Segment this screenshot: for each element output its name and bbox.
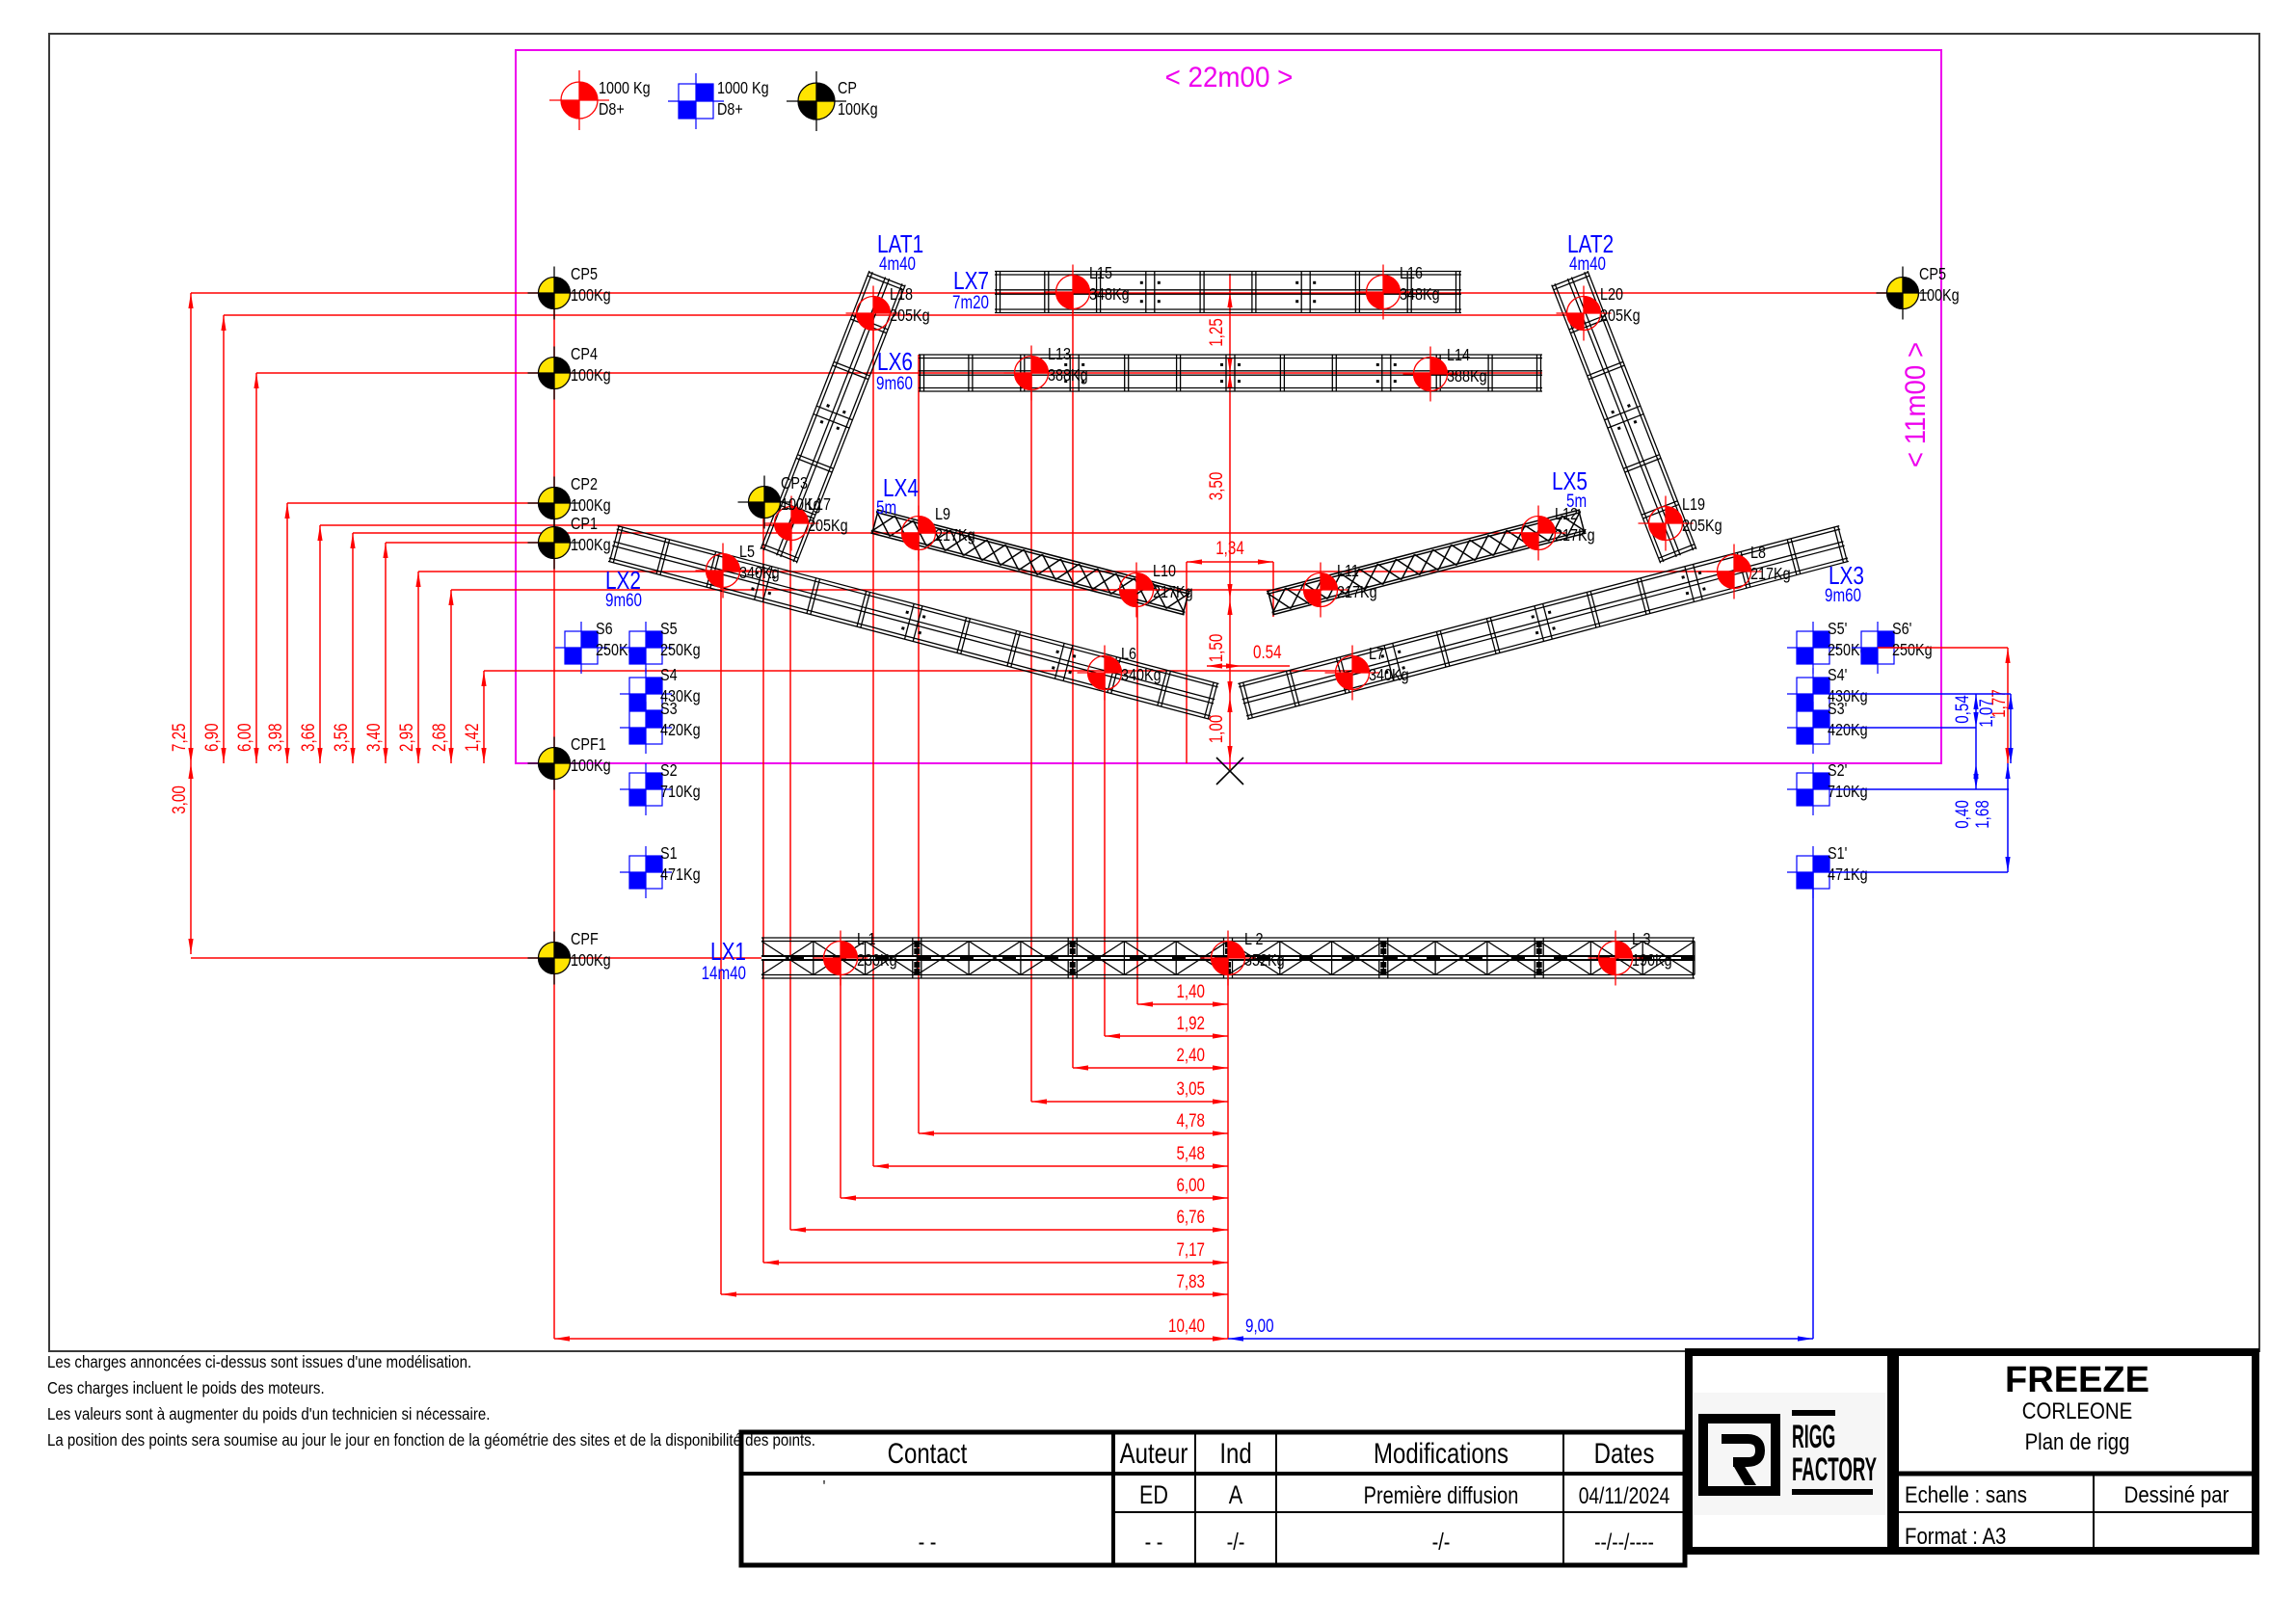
svg-text:3,98: 3,98 [264,723,285,752]
svg-text:100Kg: 100Kg [781,495,821,515]
svg-text:1,42: 1,42 [461,723,482,752]
svg-text:1,07: 1,07 [1975,699,1996,728]
svg-text:217Kg: 217Kg [1337,583,1377,602]
svg-text:340Kg: 340Kg [1121,666,1161,685]
svg-text:5,48: 5,48 [1176,1142,1205,1163]
svg-text:L 3: L 3 [1632,930,1650,949]
svg-text:S4': S4' [1828,666,1847,685]
svg-text:S6: S6 [596,620,613,639]
svg-text:4m40: 4m40 [879,253,916,274]
svg-text:S5: S5 [660,620,678,639]
svg-text:348Kg: 348Kg [1400,285,1440,305]
svg-text:471Kg: 471Kg [1828,865,1868,885]
svg-text:L6: L6 [1121,645,1136,664]
svg-text:-/-: -/- [1432,1529,1451,1556]
svg-text:--/--/----: --/--/---- [1594,1529,1654,1556]
svg-text:7,17: 7,17 [1176,1238,1205,1260]
svg-text:Plan de rigg: Plan de rigg [2025,1428,2130,1454]
svg-text:-/-: -/- [1227,1529,1245,1556]
svg-text:3,00: 3,00 [168,785,189,814]
svg-text:205Kg: 205Kg [1682,517,1722,536]
svg-text:3,56: 3,56 [330,723,351,752]
svg-text:L15: L15 [1089,264,1112,283]
svg-text:Dates: Dates [1594,1436,1655,1469]
svg-text:340Kg: 340Kg [1369,666,1409,685]
svg-text:1,92: 1,92 [1176,1012,1205,1033]
svg-text:CP: CP [838,79,857,98]
svg-text:9,00: 9,00 [1245,1315,1274,1336]
svg-text:471Kg: 471Kg [660,865,701,885]
svg-text:4,78: 4,78 [1176,1109,1205,1131]
svg-text:100Kg: 100Kg [1919,286,1960,306]
svg-text:CP5: CP5 [1919,265,1946,284]
svg-text:420Kg: 420Kg [660,721,701,740]
svg-text:388Kg: 388Kg [1447,367,1487,386]
svg-text:S6': S6' [1892,620,1911,639]
svg-text:La position des points sera so: La position des points sera soumise au j… [47,1431,815,1450]
svg-text:Modifications: Modifications [1374,1436,1508,1469]
svg-text:S2': S2' [1828,761,1847,781]
svg-text:3,50: 3,50 [1205,472,1226,501]
svg-text:420Kg: 420Kg [1828,721,1868,740]
svg-text:1,34: 1,34 [1215,537,1244,558]
svg-text:S2: S2 [660,761,678,781]
svg-text:Contact: Contact [888,1436,968,1469]
svg-text:205Kg: 205Kg [890,306,930,326]
svg-text:L 1: L 1 [857,930,875,949]
svg-text:6,90: 6,90 [200,723,222,752]
svg-text:7,83: 7,83 [1176,1270,1205,1291]
svg-text:CP1: CP1 [571,515,598,534]
svg-text:L9: L9 [935,505,950,524]
svg-text:CP2: CP2 [571,475,598,494]
svg-text:2,40: 2,40 [1176,1044,1205,1065]
svg-text:0,54: 0,54 [1951,695,1972,724]
svg-text:L5: L5 [739,543,755,562]
svg-text:6,76: 6,76 [1176,1206,1205,1227]
svg-text:RIGG: RIGG [1792,1418,1835,1454]
svg-text:L11: L11 [1337,562,1359,581]
svg-text:190Kg: 190Kg [1632,951,1672,971]
svg-text:9m60: 9m60 [876,372,913,393]
svg-text:2,68: 2,68 [428,723,449,752]
svg-text:': ' [823,1477,826,1497]
svg-text:Première diffusion: Première diffusion [1364,1482,1519,1509]
svg-text:LX6: LX6 [877,348,913,376]
svg-text:250Kg: 250Kg [660,641,701,660]
svg-text:100Kg: 100Kg [838,100,878,120]
svg-text:1,40: 1,40 [1176,980,1205,1001]
svg-text:< 22m00 >: < 22m00 > [1165,61,1294,93]
svg-text:L16: L16 [1400,264,1423,283]
svg-text:230Kg: 230Kg [857,951,897,971]
svg-text:Les valeurs sont à augmenter d: Les valeurs sont à augmenter du poids d'… [47,1405,490,1423]
svg-text:1,50: 1,50 [1205,634,1226,663]
svg-text:352Kg: 352Kg [1244,951,1285,971]
svg-text:100Kg: 100Kg [571,286,611,306]
svg-text:0,40: 0,40 [1951,800,1972,829]
svg-text:340Kg: 340Kg [739,564,780,583]
svg-text:6,00: 6,00 [1176,1174,1205,1195]
svg-text:Dessiné par: Dessiné par [2124,1481,2229,1507]
svg-text:CORLEONE: CORLEONE [2022,1397,2132,1423]
svg-text:Echelle : sans: Echelle : sans [1905,1481,2027,1507]
svg-text:S4: S4 [660,666,678,685]
svg-text:1000 Kg: 1000 Kg [599,79,651,98]
svg-text:217Kg: 217Kg [935,526,975,545]
svg-text:1,25: 1,25 [1205,318,1226,347]
svg-text:100Kg: 100Kg [571,951,611,971]
svg-text:Les charges annoncées ci-dessu: Les charges annoncées ci-dessus sont iss… [47,1353,471,1371]
svg-text:3,05: 3,05 [1176,1078,1205,1099]
svg-text:FACTORY: FACTORY [1792,1450,1877,1487]
svg-text:L19: L19 [1682,495,1705,515]
svg-text:L18: L18 [890,285,913,305]
svg-text:7,25: 7,25 [168,723,189,752]
svg-text:L14: L14 [1447,346,1470,365]
svg-text:Ces charges incluent le poids: Ces charges incluent le poids des moteur… [47,1379,325,1397]
svg-text:710Kg: 710Kg [1828,783,1868,802]
svg-text:217Kg: 217Kg [1153,583,1193,602]
svg-text:CPF1: CPF1 [571,735,606,755]
svg-text:L7: L7 [1369,645,1384,664]
svg-text:3,40: 3,40 [362,723,384,752]
svg-text:100Kg: 100Kg [571,366,611,386]
svg-text:100Kg: 100Kg [571,536,611,555]
svg-text:Auteur: Auteur [1120,1436,1188,1469]
svg-text:D8+: D8+ [599,100,625,120]
svg-text:388Kg: 388Kg [1048,366,1088,386]
svg-text:L8: L8 [1750,544,1766,563]
svg-text:3,66: 3,66 [297,723,318,752]
svg-text:CP4: CP4 [571,345,598,364]
svg-text:L20: L20 [1600,285,1623,305]
svg-text:9m60: 9m60 [605,589,642,610]
svg-text:S3': S3' [1828,700,1847,719]
svg-text:- -: - - [1145,1529,1163,1556]
svg-text:04/11/2024: 04/11/2024 [1579,1482,1670,1509]
svg-text:LX1: LX1 [710,938,746,966]
svg-text:6,00: 6,00 [233,723,254,752]
svg-text:5m: 5m [876,496,896,518]
svg-text:217Kg: 217Kg [1750,565,1791,584]
svg-text:CP3: CP3 [781,474,808,493]
svg-text:L10: L10 [1153,562,1176,581]
svg-text:CPF: CPF [571,930,599,949]
svg-text:10,40: 10,40 [1168,1315,1205,1336]
svg-text:250Kg: 250Kg [1892,641,1933,660]
svg-text:LX7: LX7 [953,267,989,295]
svg-text:S3: S3 [660,700,678,719]
svg-text:S1': S1' [1828,844,1847,864]
svg-text:Format : A3: Format : A3 [1905,1523,2006,1549]
svg-text:2,95: 2,95 [395,723,416,752]
svg-text:9m60: 9m60 [1825,584,1861,605]
svg-text:FREEZE: FREEZE [2005,1360,2149,1400]
svg-text:100Kg: 100Kg [571,757,611,776]
svg-text:L 2: L 2 [1244,930,1263,949]
svg-text:1000 Kg: 1000 Kg [717,79,769,98]
svg-text:ED: ED [1139,1481,1168,1510]
svg-text:CP5: CP5 [571,265,598,284]
svg-text:14m40: 14m40 [702,962,746,983]
svg-text:S1: S1 [660,844,678,864]
svg-text:7m20: 7m20 [952,291,989,312]
svg-text:710Kg: 710Kg [660,783,701,802]
svg-text:D8+: D8+ [717,100,743,120]
svg-text:205Kg: 205Kg [1600,306,1641,326]
svg-text:L13: L13 [1048,345,1071,364]
svg-text:0.54: 0.54 [1253,641,1282,662]
svg-text:S5': S5' [1828,620,1847,639]
svg-text:< 11m00 >: < 11m00 > [1899,342,1932,467]
svg-text:Ind: Ind [1219,1436,1251,1469]
svg-text:1,68: 1,68 [1971,800,1992,829]
svg-text:A: A [1229,1481,1243,1510]
svg-text:L12: L12 [1555,505,1578,524]
svg-text:205Kg: 205Kg [808,517,848,536]
svg-text:100Kg: 100Kg [571,496,611,516]
svg-text:217Kg: 217Kg [1555,526,1595,545]
svg-text:- -: - - [919,1529,937,1556]
svg-text:348Kg: 348Kg [1089,285,1130,305]
svg-text:4m40: 4m40 [1569,253,1606,274]
